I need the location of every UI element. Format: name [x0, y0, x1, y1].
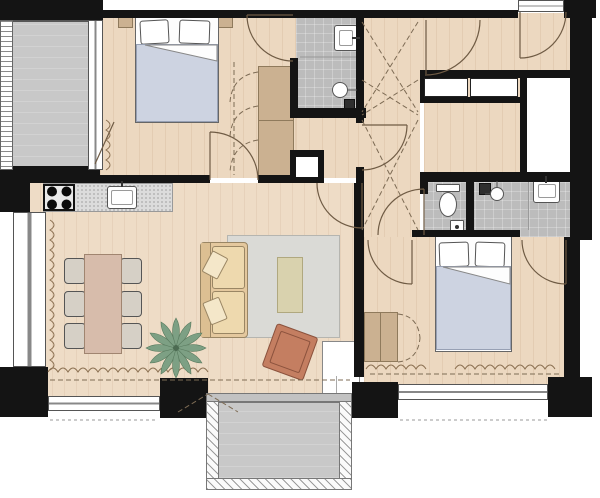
pillow [139, 19, 169, 44]
wall [160, 378, 208, 418]
entry-door-threshold [518, 0, 564, 12]
wall [354, 183, 364, 237]
wall [570, 12, 592, 240]
bedroom-2-window-south [398, 384, 548, 400]
bed-2-blanket [436, 266, 511, 350]
living-room-window-west [13, 212, 46, 367]
sofa [200, 242, 248, 338]
wall-niche [296, 157, 318, 177]
wall [0, 0, 103, 20]
wall [290, 58, 298, 115]
wall [290, 108, 366, 118]
floor-plan [0, 0, 600, 498]
dining-chair [120, 291, 142, 317]
wall [564, 237, 580, 379]
wall [420, 70, 570, 78]
pillow [179, 19, 211, 44]
pillow [439, 241, 470, 267]
living-room-window-south [48, 396, 160, 411]
wall [520, 78, 527, 175]
wall [354, 237, 364, 377]
washbasin-bathroom [533, 179, 560, 203]
dining-chair [64, 258, 86, 284]
entry-hall-floor [358, 13, 570, 75]
wall [0, 166, 30, 212]
wall [466, 182, 474, 230]
wall [548, 377, 592, 417]
dining-table [84, 254, 122, 354]
balcony-bottom-frame [206, 478, 352, 490]
shower [479, 183, 491, 195]
hallway-floor [358, 75, 420, 237]
wall [356, 13, 364, 123]
entry-closet [424, 78, 468, 97]
balcony-top-railing [0, 20, 13, 170]
toilet-tank [436, 184, 460, 192]
wall [412, 230, 520, 237]
dining-chair [120, 323, 142, 349]
wardrobe-bedroom-1 [258, 66, 294, 176]
balcony-threshold [206, 393, 352, 402]
cooktop [43, 184, 75, 211]
balcony-bottom-frame [338, 393, 352, 490]
wall [420, 182, 428, 194]
balcony-top-floor [13, 20, 90, 170]
dining-chair [64, 291, 86, 317]
bathroom-divider-line [528, 182, 529, 230]
entry-closet [470, 78, 518, 97]
wall [28, 175, 210, 183]
coffee-table [277, 257, 303, 313]
kitchen-sink [107, 186, 137, 209]
bed-1-blanket [136, 44, 218, 122]
toilet-bowl [439, 192, 457, 217]
balcony-bottom-floor [218, 402, 340, 479]
wall [424, 97, 520, 103]
dining-chair [64, 323, 86, 349]
wall [352, 382, 398, 418]
wall [420, 172, 570, 182]
wall [95, 10, 518, 18]
balcony-sliding-door [88, 20, 103, 170]
washbasin-ensuite [334, 25, 358, 51]
dresser-bedroom-2 [364, 312, 398, 362]
wall [0, 367, 48, 417]
wall [356, 167, 364, 183]
dining-chair [120, 258, 142, 284]
shaft [527, 78, 568, 170]
pillow [475, 241, 506, 267]
